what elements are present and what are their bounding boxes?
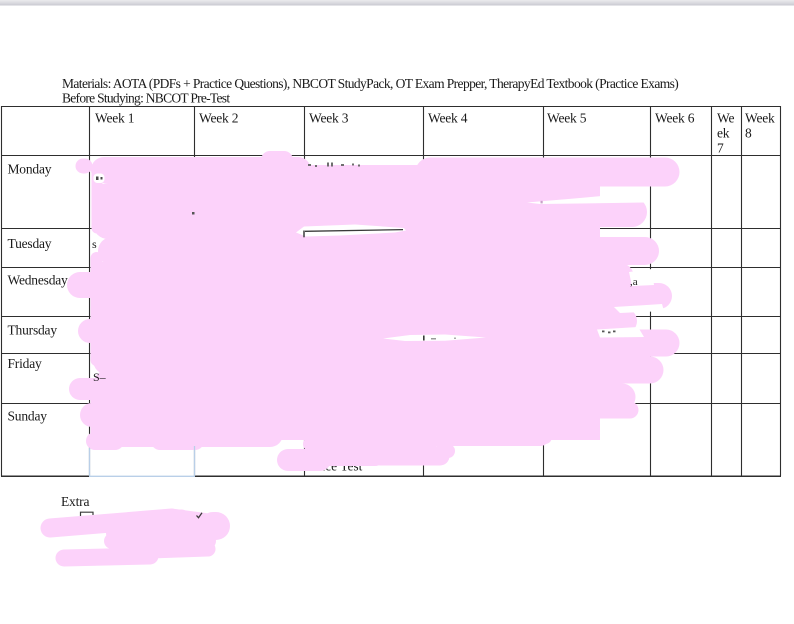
svg-text:Extra: Extra (61, 494, 89, 509)
svg-text:We: We (717, 111, 734, 126)
svg-text:S–: S– (93, 370, 107, 384)
svg-text:Week 2: Week 2 (199, 111, 238, 126)
svg-text:Week 5: Week 5 (547, 111, 587, 126)
svg-text:Wednesday: Wednesday (8, 272, 69, 287)
svg-text:ek: ek (717, 126, 730, 141)
svg-text:Week 1: Week 1 (95, 111, 134, 126)
svg-text:Week 3: Week 3 (309, 111, 349, 126)
svg-text:Thursday: Thursday (8, 322, 58, 337)
svg-text:Week: Week (745, 111, 775, 126)
svg-text:Materials: AOTA (PDFs + Practi: Materials: AOTA (PDFs + Practice Questio… (62, 76, 678, 91)
svg-text:Week 4: Week 4 (428, 111, 468, 126)
svg-text:s: s (92, 237, 97, 251)
svg-text:Tuesday: Tuesday (8, 236, 52, 251)
svg-text:Friday: Friday (8, 356, 42, 371)
svg-text:7: 7 (717, 141, 724, 156)
svg-text:Sunday: Sunday (8, 409, 48, 424)
svg-text:Before Studying: NBCOT Pre-Tes: Before Studying: NBCOT Pre-Test (62, 90, 230, 105)
svg-text:,a: ,a (630, 276, 638, 288)
svg-text:Monday: Monday (8, 161, 52, 176)
svg-text:Week 6: Week 6 (655, 111, 695, 126)
svg-text:8: 8 (745, 126, 752, 141)
